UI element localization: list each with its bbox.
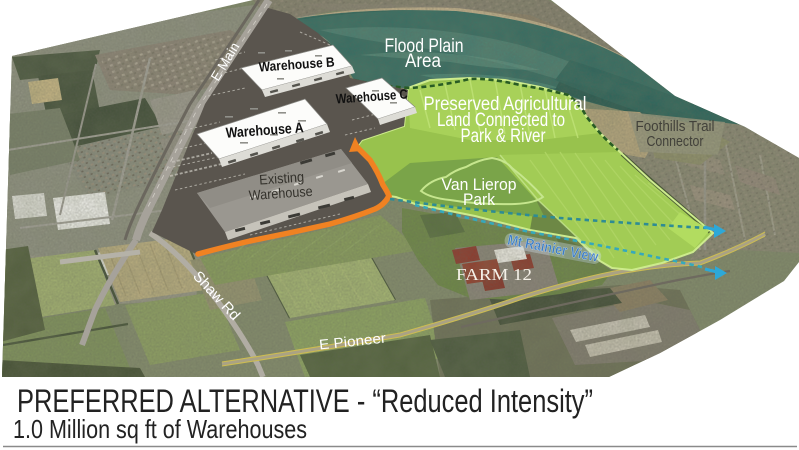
svg-text:Park & River: Park & River xyxy=(461,126,547,147)
svg-text:FARM 12: FARM 12 xyxy=(456,265,532,284)
svg-text:Park: Park xyxy=(463,190,495,209)
svg-text:Foothills Trail: Foothills Trail xyxy=(636,119,715,135)
svg-text:Area: Area xyxy=(405,51,441,72)
svg-text:Connector: Connector xyxy=(647,134,704,150)
svg-text:1.0 Million sq ft of Warehouse: 1.0 Million sq ft of Warehouses xyxy=(13,414,307,444)
